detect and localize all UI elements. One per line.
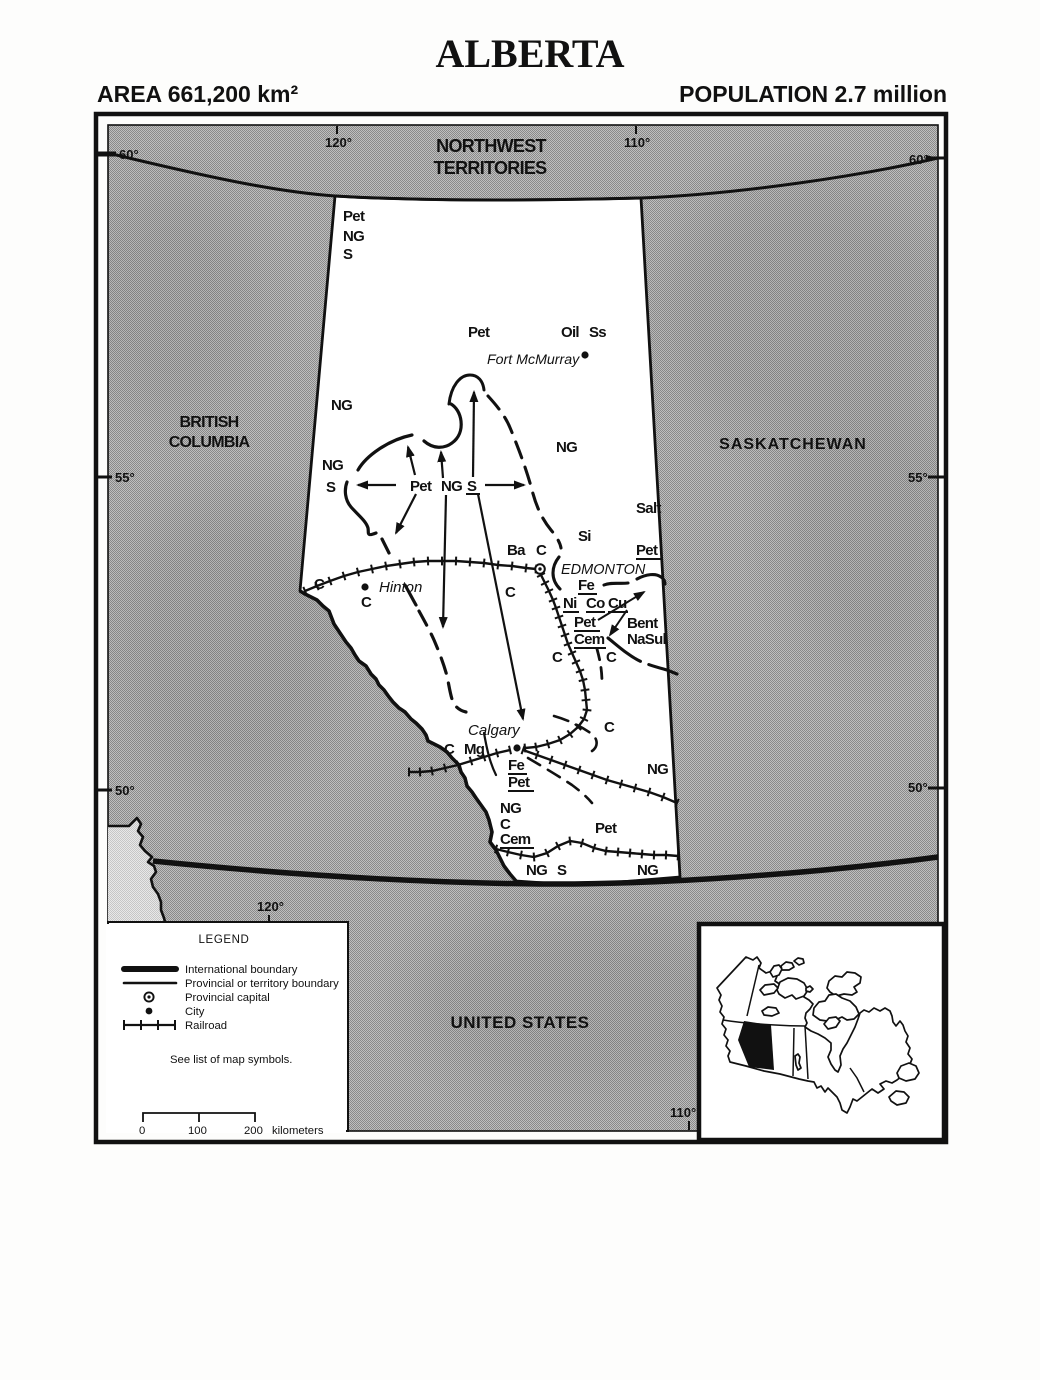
svg-text:NG: NG [441,478,462,495]
svg-text:LEGEND: LEGEND [199,934,250,946]
svg-text:110°: 110° [624,135,650,150]
svg-text:Railroad: Railroad [185,1020,227,1032]
svg-text:120°: 120° [257,899,284,914]
svg-text:S: S [343,246,353,263]
svg-text:Pet: Pet [508,774,530,791]
svg-text:Ss: Ss [589,324,606,341]
svg-text:NG: NG [637,862,658,879]
svg-text:City: City [185,1006,205,1018]
svg-text:Provincial capital: Provincial capital [185,992,270,1004]
svg-text:SASKATCHEWAN: SASKATCHEWAN [719,436,867,453]
svg-text:55°: 55° [115,470,135,485]
svg-text:Hinton: Hinton [379,579,422,596]
svg-text:Pet: Pet [595,820,617,837]
svg-text:Pet: Pet [468,324,490,341]
svg-text:60°: 60° [119,147,139,162]
svg-text:Fe: Fe [508,757,524,774]
svg-text:kilometers: kilometers [272,1125,324,1137]
svg-text:Calgary: Calgary [468,722,521,739]
svg-text:TERRITORIES: TERRITORIES [434,158,548,178]
svg-text:S: S [326,479,336,496]
svg-text:NG: NG [526,862,547,879]
svg-text:Salt: Salt [636,500,661,517]
svg-text:NG: NG [322,457,343,474]
svg-text:Fort McMurray: Fort McMurray [487,352,580,368]
svg-text:Ni: Ni [563,595,577,612]
svg-text:Oil: Oil [561,324,579,341]
svg-text:S: S [557,862,567,879]
svg-text:50°: 50° [908,780,928,795]
svg-text:55°: 55° [908,470,928,485]
svg-text:Cem: Cem [500,831,531,848]
svg-text:C: C [552,649,563,666]
svg-text:EDMONTON: EDMONTON [561,562,646,578]
svg-text:NG: NG [331,397,352,414]
svg-text:C: C [361,594,372,611]
svg-text:C: C [536,542,547,559]
svg-text:Pet: Pet [343,208,365,225]
svg-text:NG: NG [343,228,364,245]
svg-text:Cem: Cem [574,631,605,648]
svg-text:Co: Co [586,595,605,612]
svg-text:0: 0 [139,1125,145,1137]
svg-text:50°: 50° [115,783,135,798]
svg-text:Provincial or territory bounda: Provincial or territory boundary [185,978,339,990]
svg-text:Pet: Pet [636,542,658,559]
svg-text:COLUMBIA: COLUMBIA [169,434,251,451]
svg-text:C: C [606,649,617,666]
svg-text:Fe: Fe [578,577,594,594]
svg-text:Pet: Pet [410,478,432,495]
svg-text:NG: NG [500,800,521,817]
svg-text:Ba: Ba [507,542,526,559]
svg-text:BRITISH: BRITISH [179,414,238,431]
svg-text:110°: 110° [670,1105,696,1120]
svg-text:Cu: Cu [608,595,627,612]
svg-text:NORTHWEST: NORTHWEST [436,136,546,156]
svg-text:C: C [314,576,325,593]
svg-text:UNITED STATES: UNITED STATES [450,1013,589,1032]
svg-text:120°: 120° [325,135,352,150]
svg-text:NG: NG [556,439,577,456]
svg-text:S: S [467,478,477,495]
svg-text:NG: NG [647,761,668,778]
svg-text:200: 200 [244,1125,263,1137]
svg-text:NaSul: NaSul [627,631,667,648]
svg-text:60°: 60° [909,152,929,167]
svg-text:C: C [505,584,516,601]
svg-text:See list of map symbols.: See list of map symbols. [170,1054,292,1066]
svg-text:Mg: Mg [464,741,485,758]
svg-text:C: C [604,719,615,736]
svg-text:100: 100 [188,1125,207,1137]
svg-text:Bent: Bent [627,615,658,632]
svg-text:International boundary: International boundary [185,964,298,976]
svg-text:Pet: Pet [574,614,596,631]
svg-text:C: C [444,741,455,758]
svg-text:Si: Si [578,528,591,545]
